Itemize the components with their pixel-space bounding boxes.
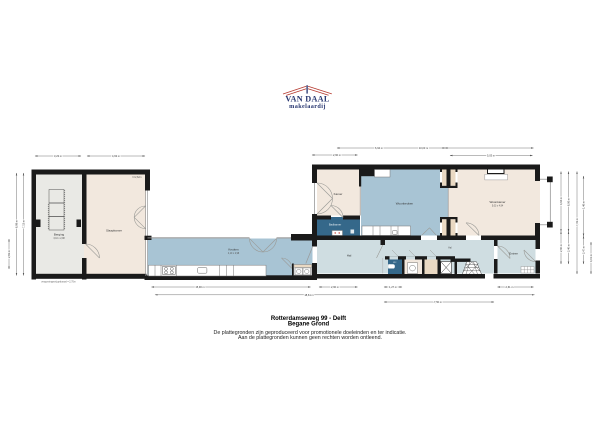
svg-text:2,60 m: 2,60 m: [331, 285, 339, 289]
svg-text:Begane Grond: Begane Grond: [288, 322, 330, 328]
svg-text:Keuken: Keuken: [228, 248, 239, 252]
svg-text:Berging: Berging: [54, 233, 65, 237]
svg-text:Entree: Entree: [509, 252, 518, 256]
svg-text:Aan de plattegronden kunnen ge: Aan de plattegronden kunnen geen rechten…: [238, 335, 382, 341]
svg-text:2,60 m: 2,60 m: [333, 153, 341, 157]
svg-text:Slaapkamer: Slaapkamer: [106, 229, 122, 233]
svg-text:Hal: Hal: [448, 248, 452, 250]
svg-text:10,03 m: 10,03 m: [419, 146, 428, 150]
svg-text:makelaardij: makelaardij: [289, 103, 326, 110]
svg-text:2,90 m: 2,90 m: [559, 244, 563, 252]
svg-text:Woonkeuken: Woonkeuken: [396, 202, 414, 206]
svg-text:5,03 m: 5,03 m: [487, 154, 495, 158]
svg-text:4,01 m: 4,01 m: [589, 254, 593, 262]
svg-text:1,46 m: 1,46 m: [582, 201, 586, 209]
svg-text:7,19 m: 7,19 m: [575, 218, 579, 226]
svg-text:3,10 x 2,98: 3,10 x 2,98: [53, 238, 65, 240]
svg-text:4,94 m: 4,94 m: [559, 197, 563, 205]
svg-text:2,61 m: 2,61 m: [506, 285, 514, 289]
svg-text:5,03 x 4,94: 5,03 x 4,94: [492, 206, 504, 208]
svg-text:h=2,62m: h=2,62m: [132, 177, 141, 179]
svg-text:Badkamer: Badkamer: [329, 222, 341, 226]
svg-text:18,61 m: 18,61 m: [304, 293, 313, 297]
svg-text:6,06 m: 6,06 m: [567, 198, 571, 206]
svg-text:6,98 m: 6,98 m: [15, 220, 19, 228]
svg-text:2,63 m: 2,63 m: [7, 250, 11, 258]
svg-text:4,10 x 2,98: 4,10 x 2,98: [228, 253, 240, 255]
svg-text:15,90 m: 15,90 m: [195, 285, 204, 289]
svg-text:Woonkamer: Woonkamer: [489, 200, 505, 204]
svg-text:6,94 m: 6,94 m: [375, 146, 383, 150]
svg-text:7,50 m: 7,50 m: [434, 300, 442, 304]
svg-text:4,63 m: 4,63 m: [112, 154, 120, 158]
svg-text:3,23 m: 3,23 m: [54, 154, 62, 158]
svg-text:1,27 m: 1,27 m: [389, 285, 397, 289]
svg-text:vergunningsvrij gebouwd = 2,70: vergunningsvrij gebouwd = 2,70m: [41, 280, 75, 283]
svg-text:2,40 m: 2,40 m: [567, 244, 571, 252]
svg-text:Kamer: Kamer: [334, 192, 343, 196]
svg-text:7,13 m: 7,13 m: [22, 220, 26, 228]
svg-text:WC: WC: [393, 262, 397, 264]
svg-text:Hal: Hal: [347, 254, 352, 258]
svg-text:2,47 m: 2,47 m: [582, 246, 586, 254]
